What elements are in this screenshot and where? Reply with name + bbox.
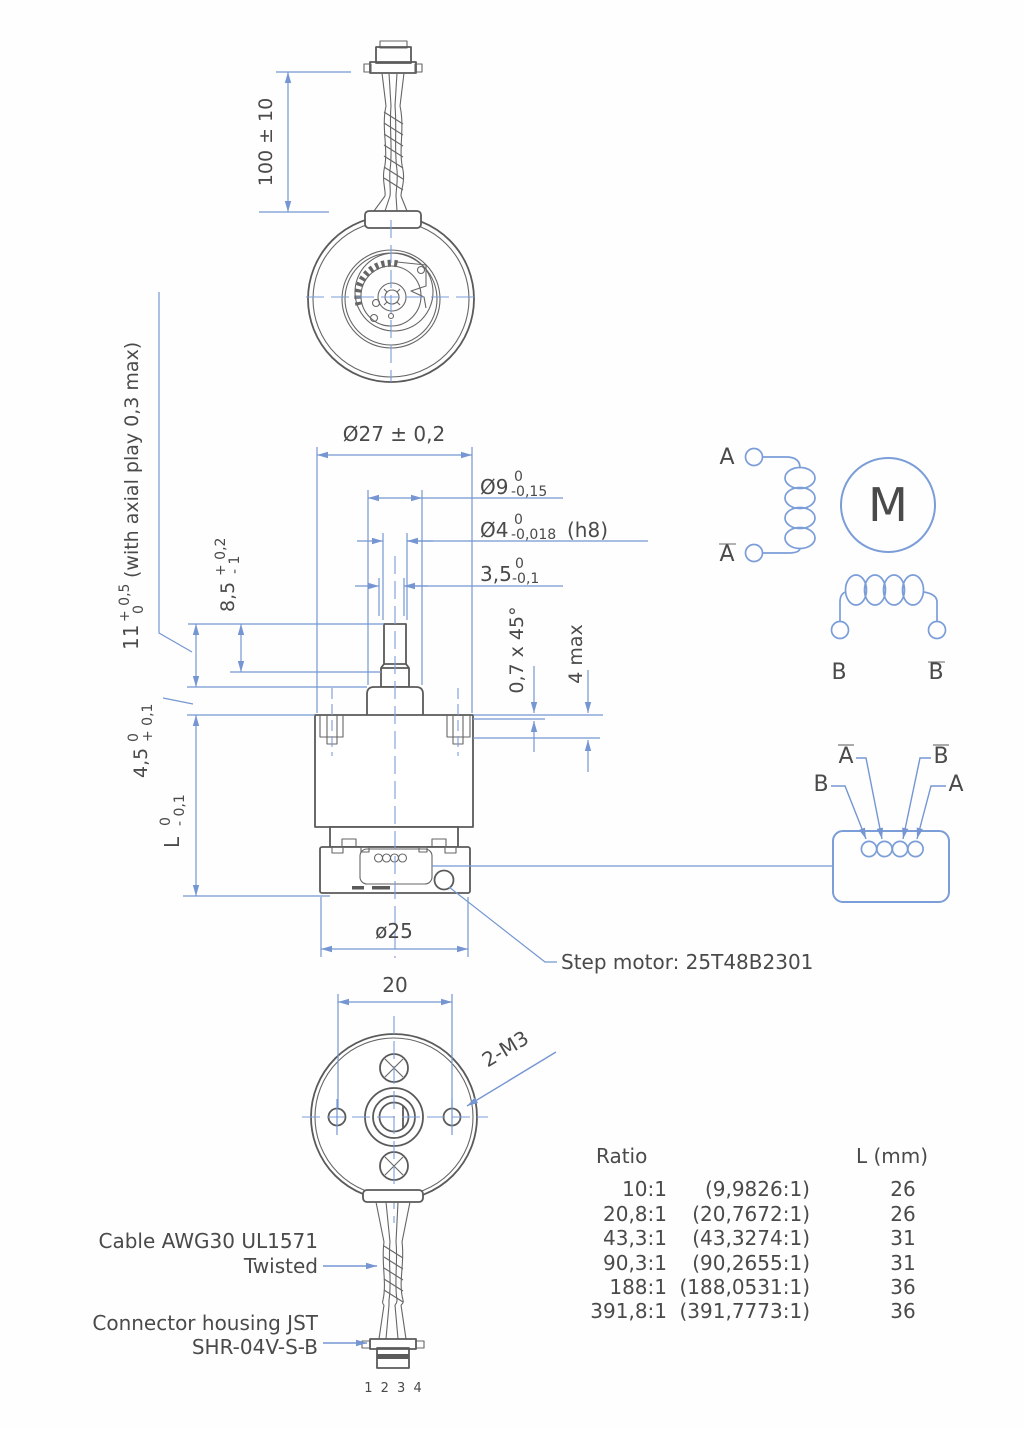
pinout-label-a: A xyxy=(948,772,963,797)
row5-ratio: 391,8:1 xyxy=(590,1299,667,1323)
twist-hatch-bottom xyxy=(384,1246,403,1302)
terminal-a xyxy=(746,449,763,466)
dim-35-upper-tol: 0 xyxy=(515,556,524,572)
table-row: 188:1 (188,0531:1) 36 xyxy=(609,1275,915,1299)
row0-exact: (9,9826:1) xyxy=(705,1177,810,1201)
connector-annotation: Connector housing JST SHR-04V-S-B xyxy=(92,1311,367,1359)
dim-11-base: 11 xyxy=(119,625,143,650)
dim-d4-fit: (h8) xyxy=(567,518,608,542)
drawing-svg: 100 ± 10 xyxy=(0,0,1024,1430)
dim-45: 4,5 0 + 0,1 xyxy=(126,698,193,778)
row2-ratio: 43,3:1 xyxy=(603,1226,667,1250)
dim-11-note: (with axial play 0,3 max) xyxy=(121,342,143,578)
connector-label-line1: Connector housing JST xyxy=(92,1311,318,1335)
dim-d4-base: Ø4 xyxy=(480,518,508,542)
row1-ratio: 20,8:1 xyxy=(603,1202,667,1226)
pin-3 xyxy=(892,841,907,856)
dim-cable-length: 100 ± 10 xyxy=(255,72,351,212)
table-row: 20,8:1 (20,7672:1) 26 xyxy=(603,1202,916,1226)
dim-chamfer-label: 0,7 x 45° xyxy=(506,606,528,693)
ratio-header: Ratio xyxy=(596,1144,647,1168)
cable-annotation: Cable AWG30 UL1571 Twisted xyxy=(99,1229,377,1278)
label-phase-a: A xyxy=(719,445,734,470)
row3-ratio: 90,3:1 xyxy=(603,1251,667,1275)
dim-m3-callout: 2-M3 xyxy=(467,1026,556,1106)
bottom-view: 20 2-M3 xyxy=(92,973,556,1396)
intermediate-plate xyxy=(330,827,458,847)
step-motor-callout: Step motor: 25T48B2301 xyxy=(449,887,813,974)
dim-4max: 4 max xyxy=(473,624,600,772)
label-phase-b-bar: B xyxy=(928,660,943,685)
length-header: L (mm) xyxy=(856,1144,928,1168)
cable-grommet-top xyxy=(365,211,421,228)
twisted-cable-bottom xyxy=(376,1202,410,1339)
pin-1 xyxy=(861,841,876,856)
label-phase-a-bar: A xyxy=(719,542,734,567)
motor-symbol-letter: M xyxy=(868,478,908,532)
step-motor-label: Step motor: 25T48B2301 xyxy=(561,950,813,974)
table-row: 90,3:1 (90,2655:1) 31 xyxy=(603,1251,916,1275)
winding-schematic: A A M B B xyxy=(719,445,946,685)
dim-d27-label: Ø27 ± 0,2 xyxy=(343,422,445,446)
dim-L-lower-tol: - 0,1 xyxy=(172,794,188,826)
pin-numbers: 1 2 3 4 xyxy=(364,1381,423,1396)
dim-4max-label: 4 max xyxy=(565,624,587,684)
top-view: 100 ± 10 xyxy=(255,41,477,382)
row0-ratio: 10:1 xyxy=(622,1177,667,1201)
dim-L-base: L xyxy=(160,836,184,848)
dim-d4-upper-tol: 0 xyxy=(514,512,523,528)
cable-grommet-bottom xyxy=(363,1190,423,1202)
dim-11-lower-tol: 0 xyxy=(131,605,147,614)
row2-length: 31 xyxy=(890,1226,915,1250)
dim-11-upper-tol: + 0,5 xyxy=(117,584,133,622)
ratio-table: Ratio L (mm) 10:1 (9,9826:1) 26 20,8:1 (… xyxy=(590,1144,928,1323)
jst-connector-top xyxy=(364,41,422,73)
dim-L: L 0 - 0,1 xyxy=(158,715,196,896)
terminal-b-bar xyxy=(929,622,946,639)
pinout-label-b-bar: B xyxy=(933,744,948,769)
dim-d4-lower-tol: -0,018 xyxy=(511,527,556,543)
row4-ratio: 188:1 xyxy=(609,1275,667,1299)
dim-d9-lower-tol: -0,15 xyxy=(511,484,547,500)
dim-m3-label: 2-M3 xyxy=(478,1026,533,1072)
dim-11: 11 + 0,5 0 (with axial play 0,3 max) xyxy=(117,292,196,687)
dim-85: 8,5 + 0,2 - 1 xyxy=(213,538,243,672)
cable-label-line2: Twisted xyxy=(243,1254,318,1278)
pinout-label-b: B xyxy=(813,772,828,797)
connector-label-line2: SHR-04V-S-B xyxy=(192,1335,318,1359)
table-row: 10:1 (9,9826:1) 26 xyxy=(622,1177,916,1201)
dim-cable-length-label: 100 ± 10 xyxy=(255,98,277,186)
dim-45-base: 4,5 xyxy=(130,748,152,778)
dim-d25-label: ø25 xyxy=(375,919,413,943)
table-row: 391,8:1 (391,7773:1) 36 xyxy=(590,1299,915,1323)
side-view: Ø27 ± 0,2 Ø9 0 -0,15 Ø4 0 -0,018 (h8) xyxy=(117,292,833,974)
dim-35-base: 3,5 xyxy=(480,562,512,586)
row4-exact: (188,0531:1) xyxy=(680,1275,811,1299)
dim-35-lower-tol: -0,1 xyxy=(512,571,539,587)
pinout-label-a-bar: A xyxy=(838,744,853,769)
pin-2 xyxy=(877,841,892,856)
twist-hatch-top xyxy=(384,112,403,190)
row5-length: 36 xyxy=(890,1299,915,1323)
twisted-cable-top xyxy=(374,73,407,211)
connector-pinout: A B B A xyxy=(813,744,963,902)
pin-4 xyxy=(908,841,923,856)
row0-length: 26 xyxy=(890,1177,915,1201)
table-row: 43,3:1 (43,3274:1) 31 xyxy=(603,1226,916,1250)
dim-d9-upper-tol: 0 xyxy=(514,469,523,485)
row1-exact: (20,7672:1) xyxy=(692,1202,810,1226)
technical-drawing-step-motor-gearbox: 100 ± 10 xyxy=(0,0,1024,1430)
gearbox-body xyxy=(315,715,473,827)
pinout-housing xyxy=(833,831,949,902)
dim-35: 3,5 0 -0,1 xyxy=(355,556,563,616)
dim-d9-base: Ø9 xyxy=(480,475,508,499)
jst-connector-bottom xyxy=(362,1339,424,1368)
dim-45-lower-tol: + 0,1 xyxy=(140,704,156,742)
terminal-a-bar xyxy=(746,545,763,562)
row4-length: 36 xyxy=(890,1275,915,1299)
row3-exact: (90,2655:1) xyxy=(692,1251,810,1275)
coil-a xyxy=(785,468,815,549)
cable-label-line1: Cable AWG30 UL1571 xyxy=(99,1229,318,1253)
label-phase-b: B xyxy=(831,660,846,685)
terminal-b xyxy=(832,622,849,639)
row5-exact: (391,7773:1) xyxy=(680,1299,811,1323)
row3-length: 31 xyxy=(890,1251,915,1275)
gear-detail xyxy=(358,262,426,326)
dim-85-base: 8,5 xyxy=(217,582,239,612)
row1-length: 26 xyxy=(890,1202,915,1226)
row2-exact: (43,3274:1) xyxy=(692,1226,810,1250)
dim-20-label: 20 xyxy=(382,973,407,997)
coil-b xyxy=(846,575,924,605)
dim-85-lower-tol: - 1 xyxy=(227,556,243,574)
